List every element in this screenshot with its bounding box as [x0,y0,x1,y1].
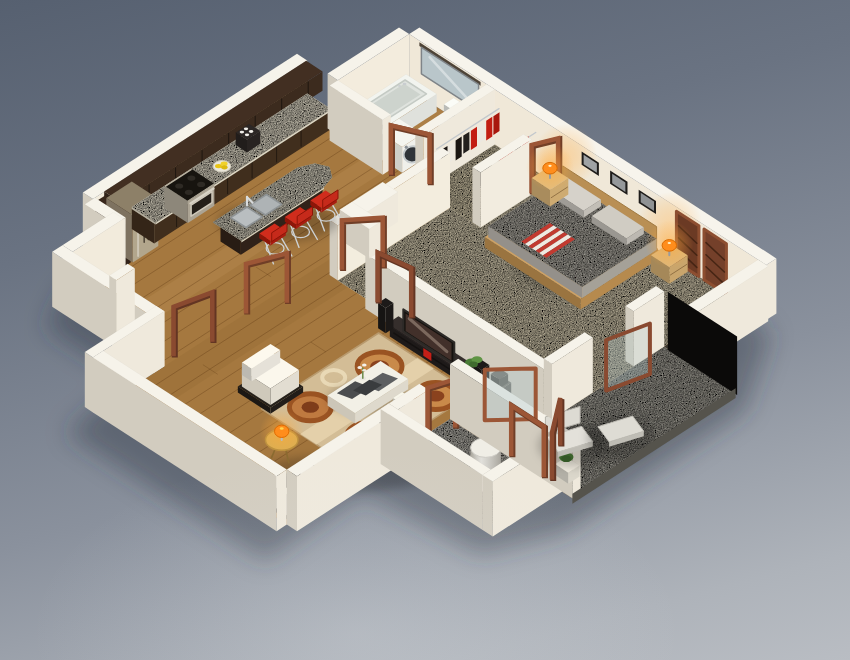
coffee-cup [244,127,248,130]
living-lamp-top [280,427,284,429]
burner [175,183,183,188]
lemon [221,165,227,169]
burner [185,190,193,195]
lamp-top-dot [668,242,671,244]
flower-bloom [357,366,362,369]
bathtub-faucet [398,85,401,87]
burner [197,182,205,187]
washer-dial [405,146,408,149]
closet-garment [493,112,499,135]
coffee-cup [240,131,244,134]
closet-garment [471,127,477,150]
lamp-shade [543,162,557,174]
flower-bloom [362,363,367,366]
closet-garment [486,117,492,141]
coffee-cup [245,133,249,136]
burner [187,176,195,181]
flower-bloom [362,369,366,372]
lamp-shade [662,240,676,252]
coffee-cup [249,130,253,133]
lamp-top-dot [548,165,551,167]
bathtub-faucet [403,83,407,85]
living-lamp-shade [275,425,289,437]
scene-backdrop [0,0,850,660]
rug-motif-center [302,402,319,413]
closet-garment [456,137,462,161]
floorplan-3d-render [0,0,850,660]
